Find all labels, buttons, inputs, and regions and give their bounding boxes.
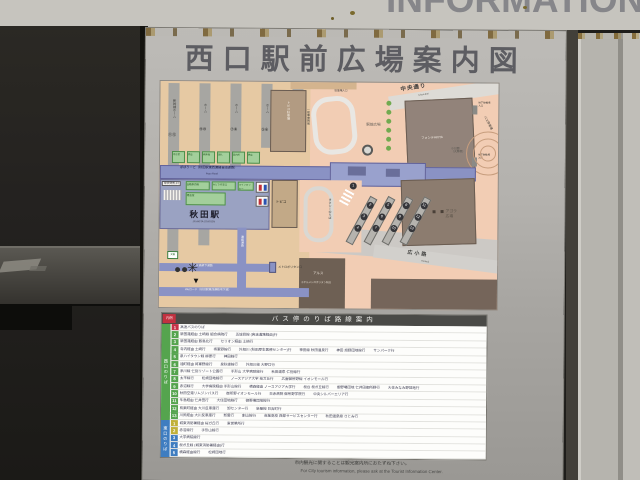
rust-spot xyxy=(523,6,527,9)
connecting-corridor: 連絡通路 xyxy=(237,228,247,292)
platform-numbers: ⑨⑩ xyxy=(199,127,206,132)
bus-route-segment: 秋田温泉 仁別線行 xyxy=(271,370,300,375)
platform-label: ホーム xyxy=(233,104,237,114)
bus-route-segment: 赤沼線行 xyxy=(180,384,194,389)
parking-entrance-label: 駐車場入口 xyxy=(334,90,347,93)
bus-route-segment: 大学病院線行 xyxy=(179,435,200,440)
adjacent-panel xyxy=(578,33,640,480)
ticket-gates xyxy=(164,190,182,200)
bus-route-segment: 新国道経由 飯島北行 xyxy=(180,340,213,345)
bus-route-segment: 卸センター行 xyxy=(227,406,248,411)
bus-stop-number-badge: 2 xyxy=(172,331,179,338)
guide-sign-board: 西口駅前広場案内図 新幹線ホーム ホーム ホーム ホーム ホーム ⑪⑫ ⑨⑩ ⑦… xyxy=(142,28,566,480)
popo-road-label: ぽぽろーど（秋田駅東西連絡自由通路） xyxy=(180,166,237,170)
bus-route-segment: 横森経由 ノースアジア大学行 xyxy=(249,384,295,389)
note-english: For City tourism information, please ask… xyxy=(301,468,563,475)
als-label: アルス xyxy=(313,272,323,276)
small-park-ring xyxy=(480,145,496,161)
station-name-label: 秋田駅 xyxy=(189,210,221,220)
restroom xyxy=(256,182,269,193)
parking-loop-road xyxy=(310,94,359,156)
bus-stop-number-badge: 1 xyxy=(172,324,179,331)
we-road-label: Weロード（秋田駅東西連絡地下道） xyxy=(185,288,231,292)
stop-dot xyxy=(182,267,187,272)
rust-spot xyxy=(350,11,355,15)
bus-table-rows: 1高速バスのりば2新国道経由 土崎線 組合病院行五城目線 (高速道路経由)行3新… xyxy=(170,324,487,459)
bus-route-segment: 桜台 桜ガ丘線行 xyxy=(303,385,329,390)
tree-icon xyxy=(386,110,391,115)
facility-box: みどりの窓口 xyxy=(212,181,236,190)
facility-box: 自動券売機 xyxy=(186,181,210,190)
tree-icon xyxy=(386,137,391,142)
bus-route-segment: 牛島経由 仁井田行 xyxy=(180,399,209,404)
bus-route-segment: 手形山 大学病院線行 xyxy=(231,369,264,374)
bus-route-segment: 秋田温泉線 さとみ行 xyxy=(325,414,358,419)
rust-spot xyxy=(331,17,334,20)
bus-route-segment: 桜ガ丘線 (城東消防署経由)行 xyxy=(179,443,224,448)
bus-route-segment: 泉ハイタウン線 柳原行 xyxy=(180,354,216,359)
tree-icon xyxy=(386,146,391,151)
fountain xyxy=(362,145,373,156)
bus-stop-number-badge: 8 xyxy=(171,376,178,383)
rust-strip xyxy=(578,33,640,39)
bus-stop-number: 3 xyxy=(359,212,368,221)
topico-parking-building: トピコ駐車場 xyxy=(270,90,306,152)
stairs xyxy=(386,169,400,177)
bus-route-segment: 神田線行 xyxy=(224,355,238,360)
metal-band xyxy=(0,246,148,306)
bus-stop-number: 6 xyxy=(377,212,386,221)
bus-stop-number-badge: 3 xyxy=(172,339,179,346)
bus-route-segment: 手形山線行 xyxy=(201,428,219,433)
bus-table-tag: 凡例 xyxy=(163,314,176,323)
bus-route-segment: 秋田空港リムジンバス行 xyxy=(180,391,219,396)
photo-of-station-sign: INFORMATION 西口駅前広場案内図 新幹線ホーム ホーム ホーム xyxy=(0,0,640,480)
bus-stop-1: 1 xyxy=(350,182,357,189)
bus-route-segment: 新国道経由 土崎線 組合病院行 xyxy=(180,332,227,337)
facility-box: コインロッカー xyxy=(238,182,254,191)
facility-box-small: 売店 xyxy=(187,151,200,163)
bus-route-row: 5横森経由線行松崎団地行 xyxy=(170,449,486,459)
bus-route-segment: 中央シルバーエリア行 xyxy=(313,392,348,397)
facility-box-small: 改札 xyxy=(217,151,230,163)
station-square-map: 新幹線ホーム ホーム ホーム ホーム ホーム ⑪⑫ ⑨⑩ ⑦⑧ ⑤⑥ ③④ トピ… xyxy=(158,80,500,311)
topico-label: トピコ xyxy=(276,200,287,204)
bus-route-segment: 神田線 秋田温泉行 xyxy=(299,348,328,353)
bus-stop-number-badge: 2 xyxy=(171,427,178,434)
bus-route-segment: サンパーク行 xyxy=(373,348,394,353)
compass-icon: ✳ xyxy=(187,261,198,274)
bus-route-segment: 大学病院経由 手形山線行 xyxy=(202,384,242,389)
note-japanese: 市内観光に関することは観光案内所におたずね下さい。 xyxy=(295,460,557,468)
platform-label: ホーム xyxy=(264,104,268,114)
bus-route-segment: 有楽町経由 大川反車庫行 xyxy=(180,406,220,411)
bus-stop-number: 2 xyxy=(365,200,374,209)
bus-route-segment: 新屋線 日吉町行 xyxy=(256,407,282,412)
bus-dropoff-label: バス降車場 xyxy=(483,116,493,131)
bus-route-segment: 商業高校 西部サービスセンター行 xyxy=(264,414,318,419)
stop-dot xyxy=(175,267,180,272)
facility-box-small: 券売機 xyxy=(202,151,215,163)
waiting-room-box: 待合室 xyxy=(186,192,226,205)
bus-route-segment: 通町経由 将軍野線行 xyxy=(180,362,213,367)
taxi-stand-label: タクシーのりば xyxy=(328,198,332,219)
bus-route-segment: 広面御所野線 イオンモール行 xyxy=(281,377,328,382)
bus-route-table: バス停のりば路線案内 凡例 西口のりば東口のりば 1高速バスのりば2新国道経由 … xyxy=(160,312,488,461)
panel-gap xyxy=(566,30,578,480)
bus-route-segment: 外旭川 (秋田厚生医療センター)行 xyxy=(239,347,291,352)
platform-numbers: ⑤⑥ xyxy=(261,128,268,133)
bus-route-segment: 五城目線 (高速道路経由)行 xyxy=(236,333,278,338)
large-building xyxy=(401,178,477,246)
bus-stop-number-badge: 1 xyxy=(171,420,178,427)
bus-stop-number: 5 xyxy=(383,201,392,210)
car-dropoff-label: 一般車乗降場 xyxy=(306,108,309,125)
bus-route-segment: 外旭川線 大野口行 xyxy=(246,362,275,367)
wall-heading-text: INFORMATION xyxy=(386,0,640,17)
hotel-metropolitan-label: ホテルメトロポリタン秋田 xyxy=(301,282,331,285)
bus-stop-number-badge: 7 xyxy=(171,368,178,375)
bus-route-segment: 将軍野線行 xyxy=(214,347,232,352)
bus-route-segment: 城東消防署経由 桜ガ丘行 xyxy=(179,421,219,426)
bus-route-segment: 東営業所行 xyxy=(227,421,245,426)
bus-stop-number-badge: 6 xyxy=(171,361,178,368)
bus-stop-number-badge: 9 xyxy=(171,383,178,390)
restroom xyxy=(256,196,269,207)
fonte-akita-label: フォンテAKITA xyxy=(421,136,443,141)
bus-route-segment: 割山線行 xyxy=(242,414,256,419)
metropolitan-exit-label: メトロポリタン口 xyxy=(278,266,302,270)
topico-parking-label: トピコ駐車場 xyxy=(285,101,289,120)
bus-stop-number-badge: 12 xyxy=(171,405,178,412)
compass-south-arrow: ▼ xyxy=(192,277,200,285)
facility-box-small: 売店 xyxy=(247,152,260,164)
scratch-mark xyxy=(29,266,47,271)
platform-numbers: ⑪⑫ xyxy=(168,133,176,138)
bus-route-segment: 川尻経由 大川反車庫行 xyxy=(180,413,216,418)
sign-title: 西口駅前広場案内図 xyxy=(158,35,554,80)
bike-entrance-mark xyxy=(472,105,477,114)
connecting-corridor-label: 連絡通路 xyxy=(240,236,243,247)
bus-route-segment: 大住みなみ野団地行 xyxy=(388,385,420,390)
bus-stop-number-badge: 3 xyxy=(171,435,178,442)
police-box: 交番 xyxy=(167,251,178,259)
stairs xyxy=(348,166,366,175)
bus-route-segment: 松崎団地行 xyxy=(208,450,226,455)
bus-stop-number-badge: 13 xyxy=(171,412,178,419)
bus-route-segment: 大住団地線行 xyxy=(217,399,238,404)
station-name-en: JR AKITA STATION xyxy=(192,221,215,224)
central-gate-label: 中央改札口 xyxy=(162,181,181,187)
platform-label: ホーム xyxy=(202,103,206,113)
bus-route-segment: 寺内経由 土崎行 xyxy=(180,347,206,352)
bus-table-body: 西口のりば東口のりば 1高速バスのりば2新国道経由 土崎線 組合病院行五城目線 … xyxy=(161,324,487,460)
bus-route-segment: 松崎団地線行 xyxy=(202,377,223,382)
popo-road-label-en: Popo Road xyxy=(206,173,218,176)
bus-route-segment: セリオン経由 土崎行 xyxy=(221,340,254,345)
we-road xyxy=(159,287,309,297)
bus-route-segment: 日赤病院 御所野学院行 xyxy=(269,392,305,397)
bus-stop-number-badge: 5 xyxy=(171,449,178,456)
dark-recess xyxy=(0,304,72,330)
bus-route-segment: 御野場団地線行 xyxy=(246,399,271,404)
facility-box-small: 待合室 xyxy=(172,151,185,163)
bus-route-segment: 御所野イオンモール行 xyxy=(226,392,261,397)
south-buildings xyxy=(371,279,499,311)
overpass-bar xyxy=(291,82,357,90)
facility-box-small: 案内所 xyxy=(232,152,245,164)
bus-table-band-label: 東口のりば xyxy=(161,420,170,457)
tree-icon xyxy=(386,119,391,124)
bus-route-segment: 泉秋操線行 xyxy=(220,362,238,367)
bus-route-segment: ノースアジア大学 桜ガ丘行 xyxy=(231,377,274,382)
bus-route-segment: 神田 旭野団地線行 xyxy=(336,348,365,353)
bus-stop-number-badge: 4 xyxy=(171,442,178,449)
bus-stop-number-badge: 11 xyxy=(171,398,178,405)
wall-heading-clip: INFORMATION xyxy=(386,0,640,17)
bus-route-segment: 新屋行 xyxy=(224,414,235,419)
station-plaza-label: 駅前広場 xyxy=(366,123,380,127)
platform-label-shinkansen: 新幹線ホーム xyxy=(171,99,175,118)
bus-route-segment: 御野場団地 仁井田御所野行 xyxy=(337,385,380,390)
bus-route-segment: 添川線 仁別リゾート公園行 xyxy=(180,369,223,374)
metropolitan-exit-mark xyxy=(269,262,276,273)
bus-route-segment: 横森経由線行 xyxy=(179,450,200,455)
bus-stop-number-badge: 10 xyxy=(171,390,178,397)
tree-icon xyxy=(386,101,391,106)
tree-icon xyxy=(386,128,391,133)
bus-route-segment: 高速バスのりば xyxy=(180,325,205,330)
bus-route-segment: 太平線行 xyxy=(180,376,194,381)
bus-stop-number-badge: 5 xyxy=(171,353,178,360)
bus-route-segment: 赤沼線行 xyxy=(179,428,193,433)
bus-stop-number-badge: 4 xyxy=(171,346,178,353)
platform-numbers: ⑦⑧ xyxy=(230,128,237,133)
